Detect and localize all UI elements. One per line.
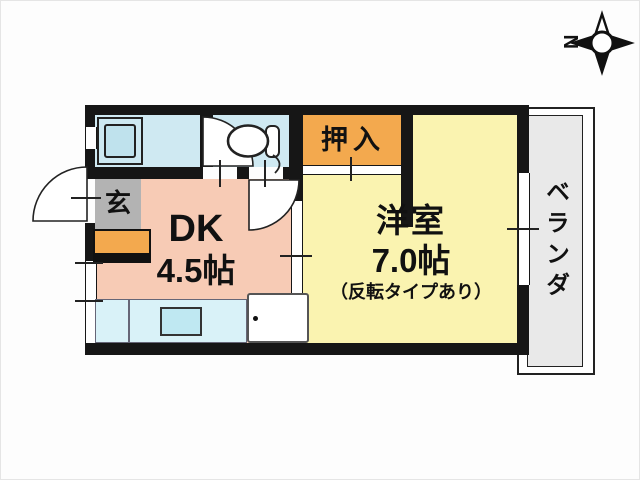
wall-bath-toilet-divider	[200, 115, 213, 167]
western-room-area-upper	[413, 115, 517, 175]
compass-icon	[573, 14, 631, 72]
compass-north-label: N	[561, 35, 583, 49]
wall-service-bottom-left	[85, 167, 203, 179]
window-bathroom	[85, 127, 97, 149]
western-room-size: 7.0帖	[372, 244, 451, 279]
appliance-handle	[253, 316, 258, 321]
sliding-door-closet	[303, 165, 401, 175]
bathtub-icon	[97, 117, 143, 165]
sink-icon	[160, 307, 202, 336]
wall-service-bottom-mid	[237, 167, 249, 179]
wall-right-lower	[517, 285, 529, 343]
western-room-name: 洋室	[376, 204, 446, 239]
closet-label: 押入	[321, 126, 385, 154]
bathtub-basin	[104, 124, 136, 158]
closet-area: 押入	[303, 115, 403, 165]
wall-dk-western-upper	[289, 173, 303, 201]
veranda-floor: ベランダ	[527, 115, 583, 367]
refrigerator-space-icon	[247, 293, 309, 343]
dk-room-size: 4.5帖	[157, 254, 236, 289]
western-room-label-group: 洋室 7.0帖 （反転タイプあり）	[313, 197, 509, 309]
toilet-area	[213, 115, 289, 167]
wall-left-upper	[85, 105, 95, 127]
sliding-door-veranda	[518, 173, 530, 285]
wall-left-mid	[85, 149, 95, 169]
floor-plan: 押入 玄 ベランダ DK 4.5帖 洋室	[0, 0, 640, 480]
wall-bottom	[85, 343, 529, 355]
dk-room-name: DK	[169, 210, 224, 250]
kitchen-counter-icon	[95, 299, 247, 343]
western-room-note: （反転タイプあり）	[330, 283, 492, 302]
wall-closet-left	[289, 105, 303, 173]
veranda-label: ベランダ	[538, 179, 573, 303]
counter-divider	[128, 300, 130, 342]
wall-right-upper	[517, 105, 529, 173]
wall-top	[85, 105, 529, 115]
dk-label-group: DK 4.5帖	[111, 199, 281, 299]
